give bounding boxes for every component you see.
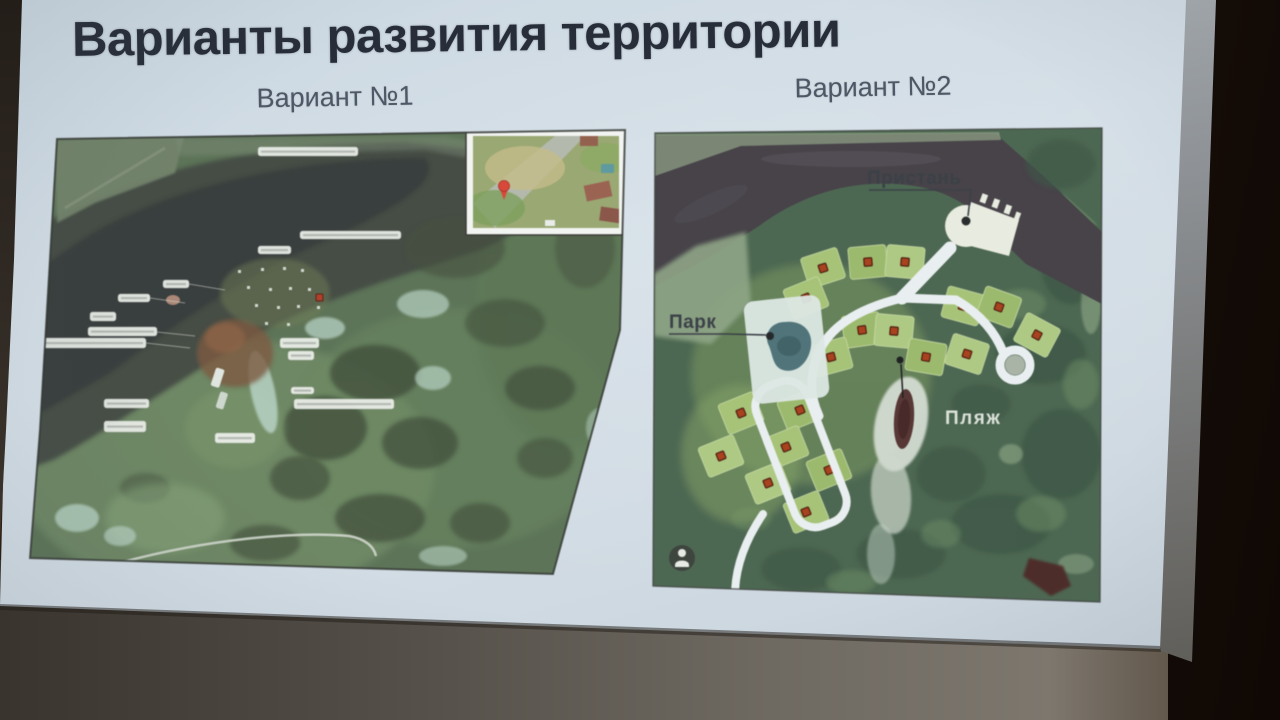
plot-marker: [962, 349, 972, 359]
plot-marker: [994, 302, 1004, 312]
plot: [905, 338, 948, 376]
person-in-circle-icon: [669, 545, 695, 571]
park-area: [743, 294, 830, 404]
slide-title: Варианты развития территории: [72, 2, 873, 68]
inset-photo: [465, 129, 629, 235]
pier-label: Пристань: [867, 168, 962, 189]
map-variant-2: Пристань Парк Пляж: [651, 124, 1109, 606]
plot: [874, 313, 915, 348]
plot-marker: [864, 258, 873, 267]
map-variant-1: [25, 128, 629, 580]
photo-of-projected-slide: Варианты развития территории Вариант №1 …: [0, 0, 1280, 720]
plot-marker: [857, 325, 866, 334]
plot: [848, 244, 889, 279]
variant-2-label: Вариант №2: [773, 70, 974, 104]
plot-marker: [818, 263, 828, 273]
plot-marker: [901, 258, 910, 267]
red-marker: [316, 294, 323, 301]
park-label: Парк: [669, 312, 716, 333]
plot-marker: [826, 352, 836, 362]
beach-label: Пляж: [945, 408, 1001, 429]
variant-1-label: Вариант №1: [250, 81, 421, 115]
plot-marker: [921, 352, 930, 361]
plot-marker: [890, 327, 899, 336]
